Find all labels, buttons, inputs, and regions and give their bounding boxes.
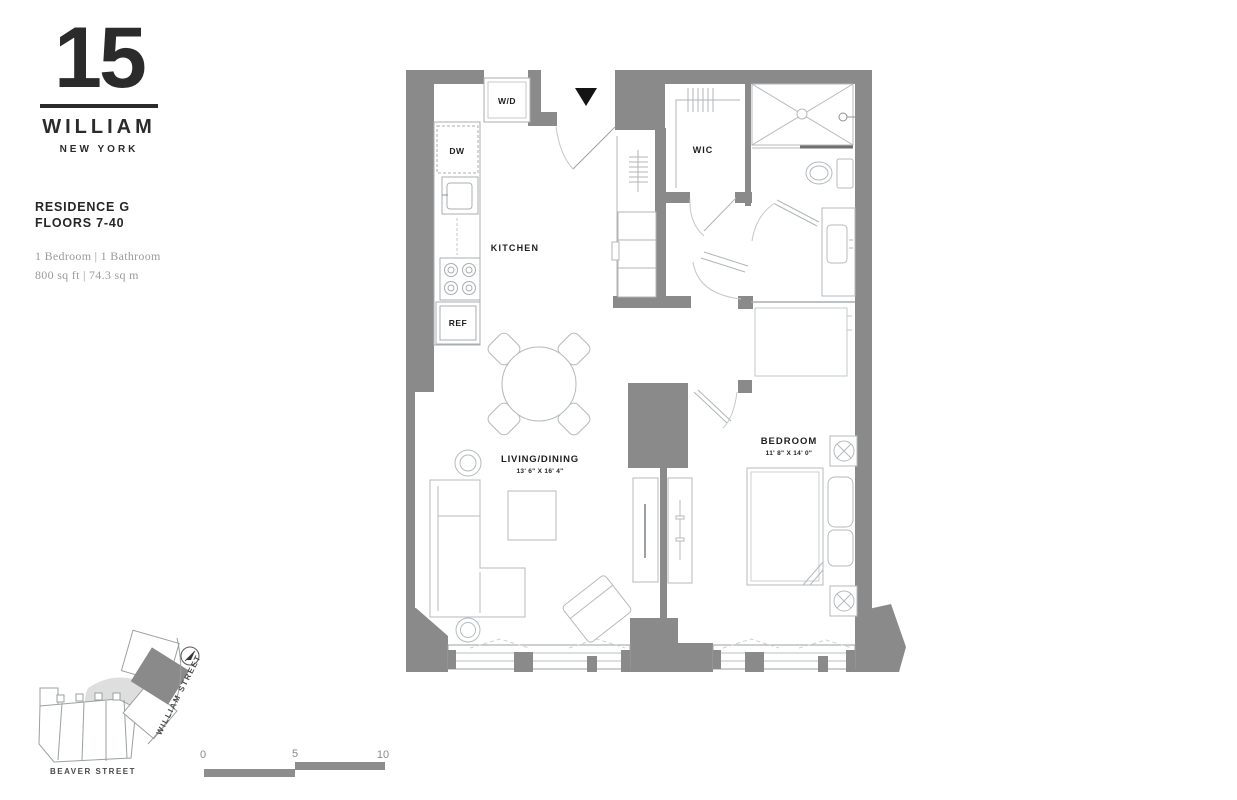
bathroom (752, 84, 855, 296)
brand-city: NEW YORK (40, 144, 158, 155)
brand-name: WILLIAM (40, 116, 158, 139)
residence-floors: FLOORS 7-40 (35, 215, 255, 231)
residence-config: 1 Bedroom | 1 Bathroom (35, 247, 255, 266)
beaver-street-label: BEAVER STREET (50, 767, 136, 776)
vanity-sink (822, 208, 855, 296)
scale-segment-low (204, 769, 295, 777)
residence-info: RESIDENCE G FLOORS 7-40 1 Bedroom | 1 Ba… (35, 199, 255, 285)
residence-title: RESIDENCE G (35, 199, 255, 215)
brand-block: 15 WILLIAM NEW YORK (40, 16, 158, 155)
site-map-buildings (39, 630, 189, 762)
toilet (806, 159, 853, 188)
bedroom-dims: 11' 8" X 14' 0" (766, 450, 813, 457)
living-furniture (430, 331, 658, 644)
entry-marker-icon (575, 88, 597, 106)
pillow (828, 477, 853, 527)
coat-closet (612, 136, 656, 297)
dining-table (502, 347, 576, 421)
desk (755, 308, 852, 376)
floor-plan: W/D DW KITCHEN REF WIC LIVING/DINING 13'… (398, 60, 914, 680)
living-dining-dims: 13' 6" X 16' 4" (516, 468, 563, 475)
wic-closet-rod (676, 88, 740, 188)
tv-console (633, 478, 658, 582)
pillow (828, 530, 853, 566)
dishwasher-label: DW (449, 146, 465, 156)
kitchen-label: KITCHEN (491, 243, 539, 253)
bedroom-furniture (668, 436, 857, 616)
stove (440, 258, 480, 300)
shower (752, 84, 855, 145)
kitchen-sink (442, 177, 478, 214)
brand-number: 15 (40, 16, 158, 100)
wic-label: WIC (693, 145, 714, 155)
dresser (668, 478, 692, 583)
scale-segment-high (295, 762, 385, 770)
accent-chair (562, 574, 633, 643)
residence-area: 800 sq ft | 74.3 sq m (35, 266, 255, 285)
washer-dryer-label: W/D (498, 96, 516, 106)
scale-end-label: 10 (377, 749, 389, 761)
bedroom-label: BEDROOM (761, 436, 818, 447)
scale-start-label: 0 (200, 749, 206, 761)
coffee-table (508, 491, 556, 540)
living-dining-label: LIVING/DINING (501, 454, 579, 465)
scale-mid-label: 5 (292, 748, 298, 760)
bed (747, 468, 853, 585)
refrigerator-label: REF (449, 318, 468, 328)
entry-door (556, 127, 615, 169)
scale-bar: 0 5 10 (190, 742, 395, 787)
